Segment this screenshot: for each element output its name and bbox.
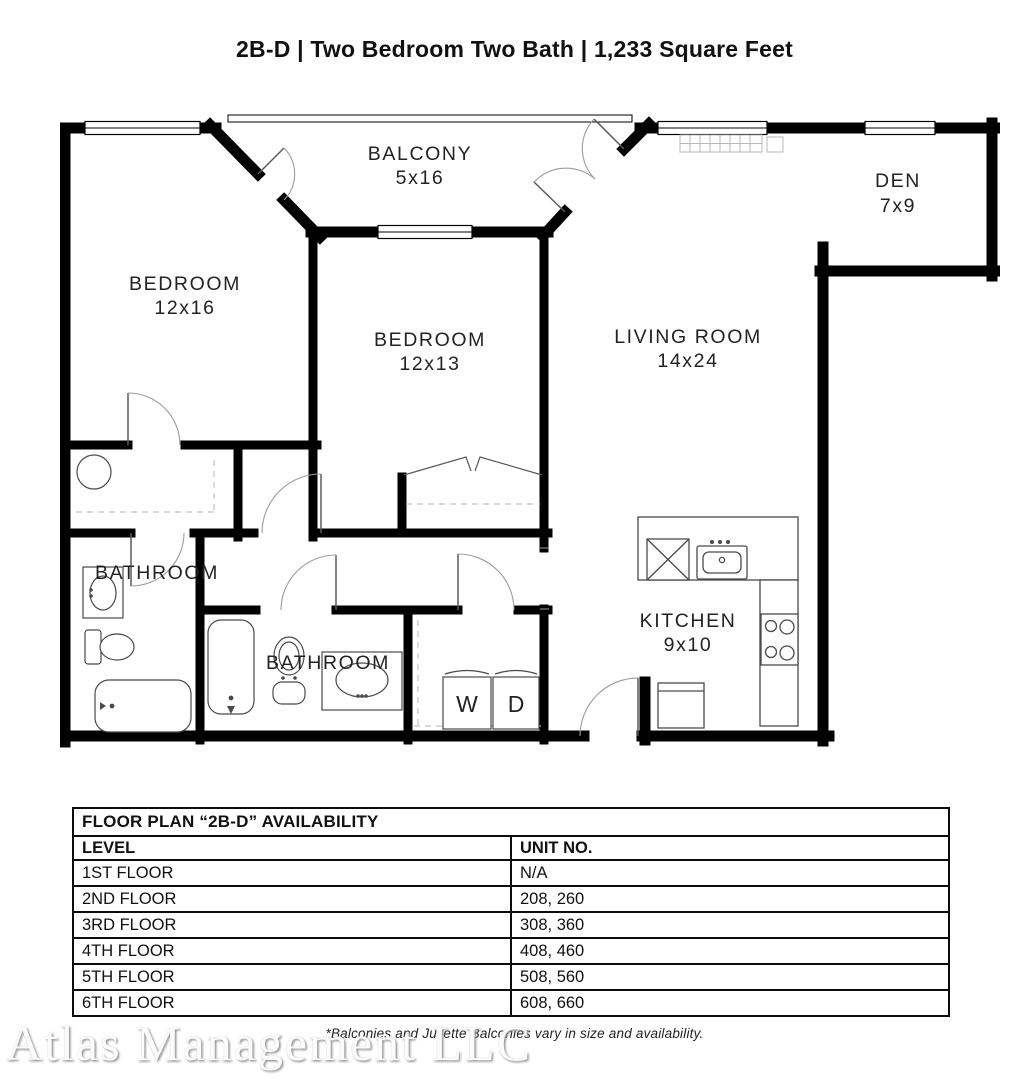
- closet-fixture: [77, 455, 111, 489]
- bedroom2-dims: 12x13: [399, 353, 460, 375]
- kitchen-dims: 9x10: [664, 634, 713, 656]
- outer-walls: [65, 123, 997, 742]
- window-bedroom2: [378, 226, 472, 239]
- bifold-closet-doors: [404, 457, 542, 475]
- availability-table: FLOOR PLAN “2B-D” AVAILABILITY LEVEL UNI…: [72, 807, 950, 1017]
- dishwasher-icon: [647, 539, 689, 580]
- table-title: FLOOR PLAN “2B-D” AVAILABILITY: [73, 808, 949, 836]
- washer-label: W: [456, 691, 478, 717]
- den-dims: 7x9: [880, 195, 916, 217]
- floor-plan-drawing: BALCONY 5x16 DEN 7x9 BEDROOM 12x16 BEDRO…: [60, 108, 1000, 763]
- balcony-footnote: *Balconies and Juliette Balconies vary i…: [0, 1026, 1029, 1041]
- bathroom1-fixtures: [83, 567, 191, 732]
- level-cell: 5TH FLOOR: [73, 964, 511, 990]
- window-bedroom1: [85, 122, 200, 135]
- floor-plan: BALCONY 5x16 DEN 7x9 BEDROOM 12x16 BEDRO…: [60, 108, 1000, 763]
- level-cell: 4TH FLOOR: [73, 938, 511, 964]
- level-cell: 2ND FLOOR: [73, 886, 511, 912]
- toilet-icon: [85, 630, 134, 664]
- units-cell: 508, 560: [511, 964, 949, 990]
- living-room-label: LIVING ROOM: [614, 326, 762, 348]
- units-cell: 608, 660: [511, 990, 949, 1016]
- bedroom1-dims: 12x16: [154, 297, 215, 319]
- level-cell: 6TH FLOOR: [73, 990, 511, 1016]
- heater-grid: [680, 135, 783, 152]
- den-label: DEN: [875, 170, 921, 192]
- dryer-label: D: [508, 691, 525, 717]
- kitchen-sink-icon: [697, 541, 747, 579]
- table-title-row: FLOOR PLAN “2B-D” AVAILABILITY: [73, 808, 949, 836]
- units-cell: 308, 360: [511, 912, 949, 938]
- living-room-dims: 14x24: [657, 350, 718, 372]
- balcony-label: BALCONY: [368, 143, 472, 165]
- table-row: 1ST FLOOR N/A: [73, 860, 949, 886]
- level-cell: 1ST FLOOR: [73, 860, 511, 886]
- column-header-level: LEVEL: [73, 836, 511, 860]
- bathtub-icon: [208, 620, 254, 714]
- table-row: 2ND FLOOR 208, 260: [73, 886, 949, 912]
- balcony-railing: [228, 115, 632, 122]
- table-header-row: LEVEL UNIT NO.: [73, 836, 949, 860]
- units-cell: N/A: [511, 860, 949, 886]
- table-row: 6TH FLOOR 608, 660: [73, 990, 949, 1016]
- table-row: 4TH FLOOR 408, 460: [73, 938, 949, 964]
- table-row: 3RD FLOOR 308, 360: [73, 912, 949, 938]
- bedroom1-label: BEDROOM: [129, 273, 241, 295]
- units-cell: 208, 260: [511, 886, 949, 912]
- table-row: 5TH FLOOR 508, 560: [73, 964, 949, 990]
- bathroom1-label: BATHROOM: [95, 562, 219, 584]
- kitchen-label: KITCHEN: [640, 610, 737, 632]
- units-cell: 408, 460: [511, 938, 949, 964]
- level-cell: 3RD FLOOR: [73, 912, 511, 938]
- window-living-room: [658, 122, 767, 135]
- page-title: 2B-D | Two Bedroom Two Bath | 1,233 Squa…: [0, 36, 1029, 63]
- company-watermark: Atlas Management LLC: [6, 1014, 532, 1072]
- passage-jambs: [540, 548, 549, 609]
- bathroom2-label: BATHROOM: [266, 652, 390, 674]
- balcony-dims: 5x16: [396, 167, 445, 189]
- refrigerator-icon: [658, 683, 704, 728]
- window-den: [865, 122, 935, 135]
- bathtub-icon: [95, 680, 191, 732]
- column-header-unit: UNIT NO.: [511, 836, 949, 860]
- bedroom2-label: BEDROOM: [374, 329, 486, 351]
- windows: [85, 122, 935, 239]
- stove-icon: [761, 614, 798, 665]
- floor-plan-flyer: { "page": { "title": "2B-D | Two Bedroom…: [0, 0, 1029, 1080]
